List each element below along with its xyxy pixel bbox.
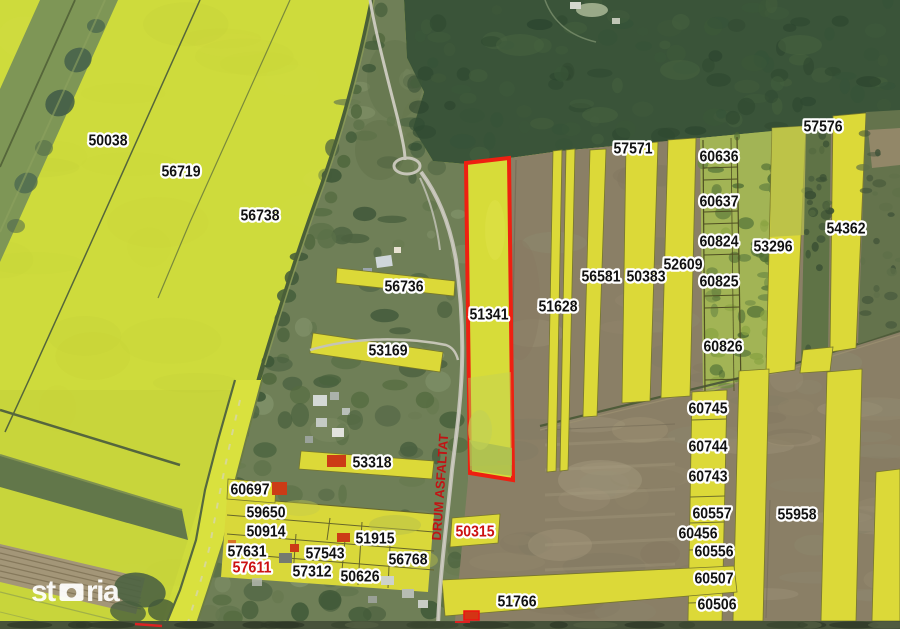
svg-text:53318: 53318 xyxy=(353,454,392,471)
svg-text:59650: 59650 xyxy=(247,504,286,521)
svg-text:60506: 60506 xyxy=(698,596,737,613)
svg-text:50626: 50626 xyxy=(341,568,380,585)
svg-text:60825: 60825 xyxy=(700,273,739,290)
svg-text:54362: 54362 xyxy=(827,220,866,237)
svg-text:56719: 56719 xyxy=(162,163,201,180)
svg-text:50038: 50038 xyxy=(89,132,128,149)
svg-text:53296: 53296 xyxy=(754,238,793,255)
svg-text:51766: 51766 xyxy=(498,593,537,610)
svg-text:60636: 60636 xyxy=(700,148,739,165)
svg-text:60824: 60824 xyxy=(700,233,739,250)
svg-text:57543: 57543 xyxy=(306,545,345,562)
svg-text:50914: 50914 xyxy=(247,523,286,540)
svg-text:st: st xyxy=(31,575,56,608)
svg-text:60744: 60744 xyxy=(689,438,728,455)
svg-text:56736: 56736 xyxy=(385,278,424,295)
svg-text:57571: 57571 xyxy=(614,140,653,157)
svg-text:56768: 56768 xyxy=(389,551,428,568)
svg-text:50383: 50383 xyxy=(627,268,666,285)
svg-text:60557: 60557 xyxy=(693,505,732,522)
svg-text:57631: 57631 xyxy=(228,543,267,560)
svg-text:60697: 60697 xyxy=(231,481,270,498)
svg-text:60556: 60556 xyxy=(695,543,734,560)
svg-text:50315: 50315 xyxy=(456,523,495,540)
svg-text:60745: 60745 xyxy=(689,400,728,417)
svg-text:60637: 60637 xyxy=(700,193,739,210)
svg-text:60826: 60826 xyxy=(704,338,743,355)
svg-text:57576: 57576 xyxy=(804,118,843,135)
svg-text:57611: 57611 xyxy=(233,559,272,576)
svg-text:57312: 57312 xyxy=(293,563,332,580)
svg-text:51915: 51915 xyxy=(356,530,395,547)
svg-text:56738: 56738 xyxy=(241,207,280,224)
svg-text:52609: 52609 xyxy=(664,256,703,273)
svg-text:55958: 55958 xyxy=(778,506,817,523)
svg-text:51628: 51628 xyxy=(539,298,578,315)
svg-text:51341: 51341 xyxy=(470,306,509,323)
svg-text:60456: 60456 xyxy=(679,525,718,542)
svg-text:ria: ria xyxy=(86,575,120,608)
svg-text:56581: 56581 xyxy=(582,268,621,285)
svg-text:60743: 60743 xyxy=(689,468,728,485)
svg-text:53169: 53169 xyxy=(369,342,408,359)
svg-text:60507: 60507 xyxy=(695,570,734,587)
